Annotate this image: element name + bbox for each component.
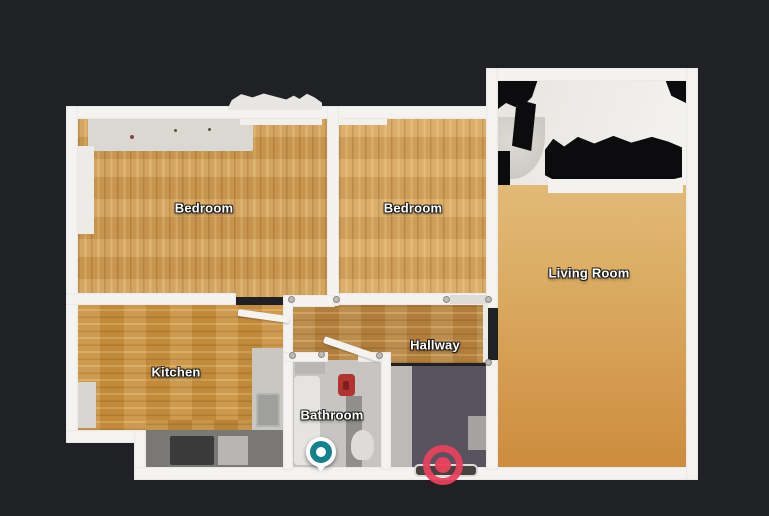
pin-teal-ring-icon [310,441,332,463]
room-label-bathroom: Bathroom [301,408,364,423]
bullseye-center-dot-icon [435,457,451,473]
scan-void [498,151,510,185]
kitchen-sink [256,393,280,427]
red-towel-blob [338,374,355,396]
furniture-speck [174,129,177,132]
wall-livingroom-left-upper [486,68,498,308]
door-hinge-dot [485,359,492,366]
bedroom2-door-closed [450,295,487,304]
slate-grey-blob [468,416,486,450]
kitchen-bottom-counter [146,430,283,467]
white-strip [548,179,683,193]
door-hinge-dot [288,296,295,303]
furniture-speck [130,135,134,139]
door-hinge-dot [443,296,450,303]
room-label-hallway: Hallway [410,338,460,353]
scan-artifact-blob [228,92,322,110]
door-hinge-dot [485,296,492,303]
hallway-tile-strip [391,366,412,467]
wardrobe-blob [78,146,94,234]
room-label-bedroom-1: Bedroom [175,201,233,216]
floorplan-canvas[interactable]: Bedroom Bedroom Living Room Kitchen Hall… [0,0,769,516]
wall-livingroom-top [486,68,698,81]
door-hinge-dot [289,352,296,359]
fridge-blob [78,382,96,428]
wall-bedroom-divider [327,106,339,306]
shower-grey-blob [295,362,325,374]
bed-furniture-blob [88,117,253,151]
furniture-speck [208,128,211,131]
toilet-blob [351,430,374,460]
livingroom-door-edge [483,303,488,362]
door-hinge-dot [376,352,383,359]
destination-bullseye-marker[interactable] [423,445,463,485]
wall-bathroom-right [381,352,391,470]
pin-tail [316,465,326,472]
counter-light-blob [218,436,248,465]
door-hinge-dot [318,351,325,358]
stove-blob [170,436,214,465]
current-position-pin[interactable] [306,437,336,467]
towel-fold [343,381,349,390]
room-label-bedroom-2: Bedroom [384,201,442,216]
room-label-kitchen: Kitchen [151,365,200,380]
door-hinge-dot [333,296,340,303]
wall-outer-left [66,106,78,443]
room-label-living-room: Living Room [549,266,630,281]
wall-bedroom1-kitchen [66,293,236,305]
wall-livingroom-left-lower [486,360,498,470]
wall-livingroom-right [686,68,698,480]
